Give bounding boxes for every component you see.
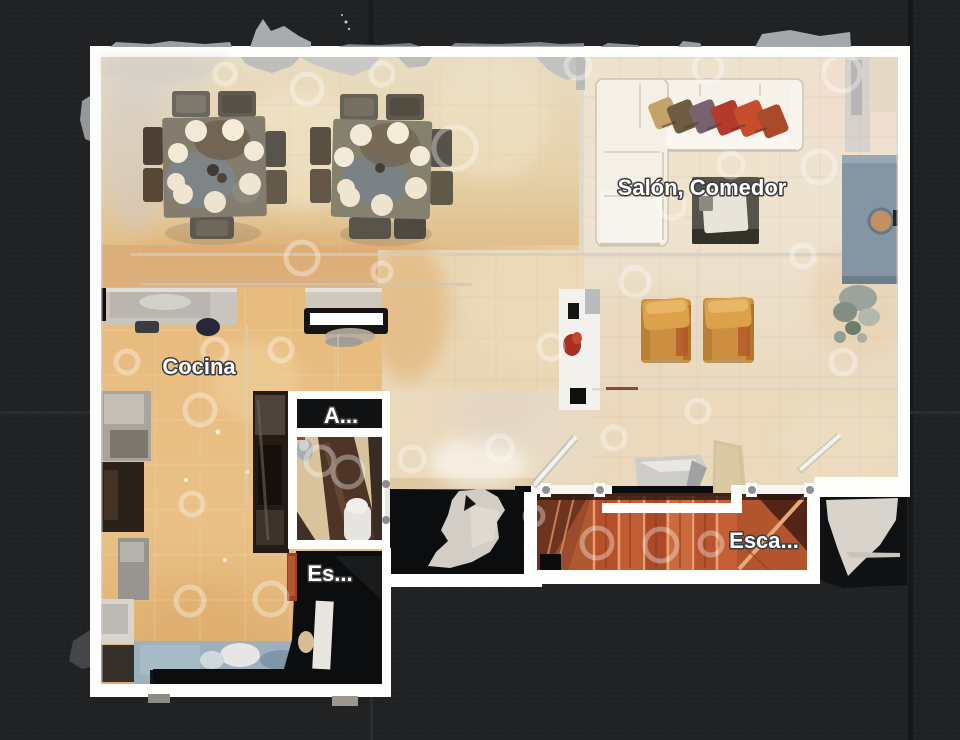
svg-text:Cocina: Cocina [162,354,236,379]
svg-text:Salón, Comedor: Salón, Comedor [618,175,787,200]
svg-text:Es...: Es... [307,561,352,586]
svg-text:A...: A... [324,403,358,428]
svg-text:Esca...: Esca... [729,528,799,553]
